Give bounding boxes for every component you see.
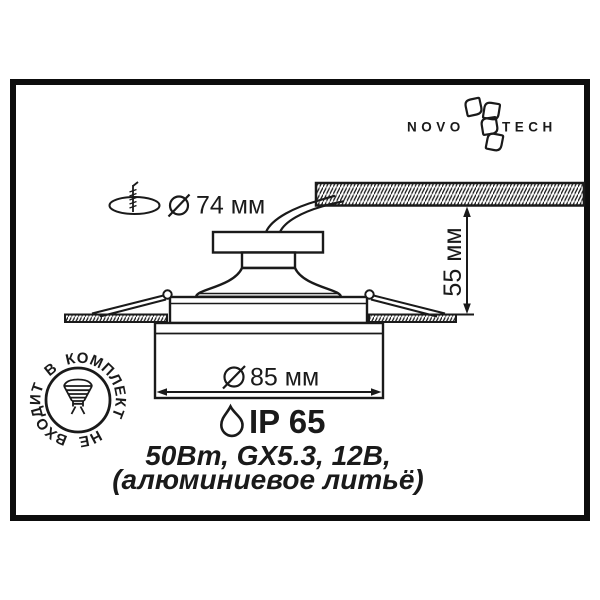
socket-neck [242, 253, 295, 269]
cutout-diameter-label: 74 мм [196, 192, 265, 220]
diagram-page: NOVO TECH 74 мм 55 мм [0, 0, 600, 600]
spec-line-material: (алюминиевое литьё) [112, 464, 424, 495]
product-diagram: NOVO TECH 74 мм 55 мм [0, 0, 600, 600]
mounting-body [170, 297, 367, 323]
ceiling-slab [316, 183, 584, 206]
depth-label: 55 мм [439, 227, 467, 296]
ip-rating-label: IP 65 [249, 403, 325, 440]
ceiling-cutout-right [369, 315, 456, 323]
terminal-box [213, 232, 323, 253]
logo-text-novo: NOVO [407, 120, 465, 135]
stamp-circle [46, 368, 110, 432]
ceiling-cutout-left [65, 315, 167, 323]
logo-text-tech: TECH [502, 120, 557, 135]
visible-diameter-label: 85 мм [250, 364, 319, 392]
